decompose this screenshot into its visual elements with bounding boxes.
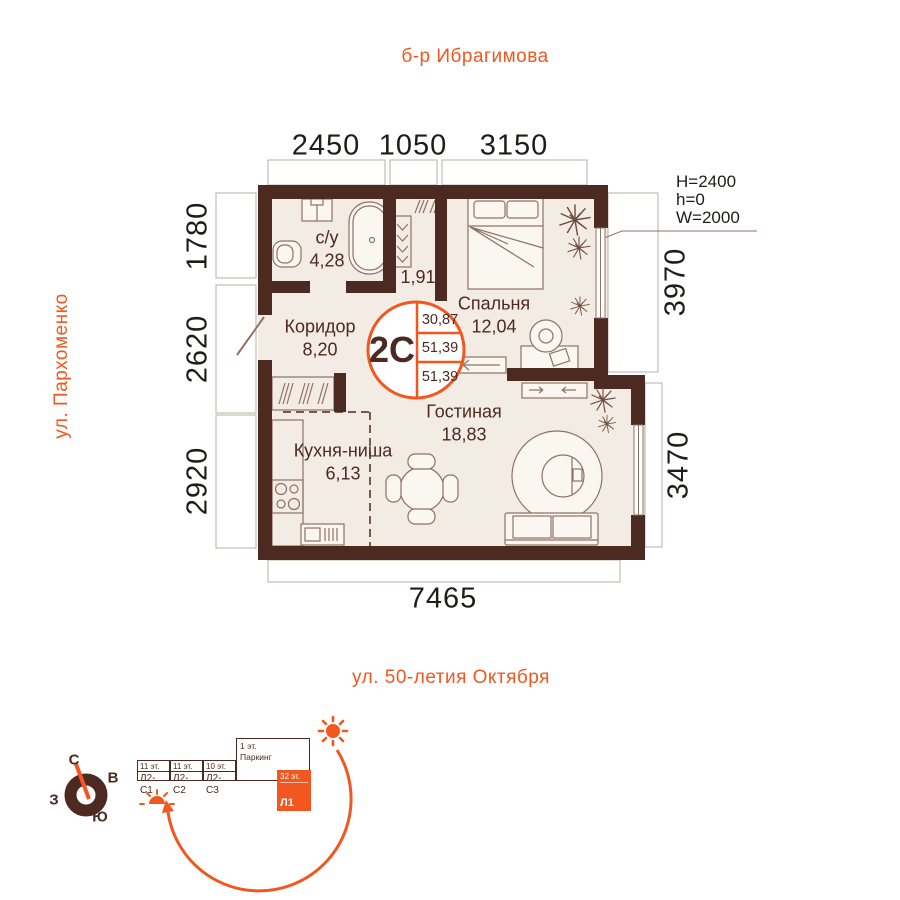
room-name-bathroom: с/у bbox=[309, 227, 344, 250]
room-label-bathroom: с/у 4,28 bbox=[309, 227, 344, 272]
room-area-living: 18,83 bbox=[426, 423, 502, 446]
site-block-l2-c2-floors: 11 эт. bbox=[171, 761, 202, 772]
site-block-l2-c2-name: Л2-С2 bbox=[171, 772, 202, 797]
site-block-l2-c1-name: Л2-С1 bbox=[138, 772, 169, 797]
site-block-l2-c1: 11 эт. Л2-С1 bbox=[137, 760, 170, 781]
dim-bottom: 7465 bbox=[409, 583, 478, 616]
window-spec-w: W=2000 bbox=[676, 209, 740, 227]
floorplan-drawing bbox=[0, 0, 900, 900]
room-label-hall: Коридор 8,20 bbox=[284, 316, 355, 361]
site-block-l2-c1-floors: 11 эт. bbox=[138, 761, 169, 772]
site-block-parking-floors: 1 эт. bbox=[240, 741, 306, 752]
unit-area-2: 51,39 bbox=[422, 340, 458, 356]
window-spec-h: H=2400 bbox=[676, 173, 740, 191]
dim-top-1: 2450 bbox=[292, 130, 361, 163]
room-name-kitchen: Кухня-ниша bbox=[294, 440, 393, 463]
window-spec-h0: h=0 bbox=[676, 191, 740, 209]
dining-table bbox=[400, 467, 444, 511]
compass-south: Ю bbox=[92, 809, 107, 826]
desk-chair bbox=[530, 320, 562, 352]
dim-top-2: 1050 bbox=[379, 130, 448, 163]
window-spec: H=2400 h=0 W=2000 bbox=[676, 173, 740, 227]
room-area-wardrobe: 1,91 bbox=[400, 266, 435, 289]
sun-icon bbox=[319, 717, 347, 745]
unit-area-3: 51,39 bbox=[422, 369, 458, 385]
room-label-living: Гостиная 18,83 bbox=[426, 401, 502, 446]
room-label-bedroom: Спальня 12,04 bbox=[458, 293, 530, 338]
street-label-top: б-р Ибрагимова bbox=[401, 46, 548, 68]
street-label-bottom: ул. 50-летия Октября bbox=[352, 667, 550, 689]
site-block-l1-name: Л1 bbox=[280, 797, 308, 809]
compass-east: В bbox=[108, 770, 119, 787]
room-name-bedroom: Спальня bbox=[458, 293, 530, 316]
compass bbox=[71, 764, 102, 811]
street-label-left: ул. Пархоменко bbox=[51, 293, 73, 438]
window-spec-leader bbox=[604, 231, 757, 238]
site-block-l1-floors: 32 эт. bbox=[280, 772, 308, 783]
unit-area-1: 30,87 bbox=[422, 312, 458, 328]
dim-left-2: 2620 bbox=[182, 315, 215, 384]
compass-west: З bbox=[49, 792, 58, 809]
room-area-kitchen: 6,13 bbox=[294, 462, 393, 485]
dim-left-1: 1780 bbox=[182, 202, 215, 271]
site-block-parking-name: Паркинг bbox=[240, 752, 306, 763]
floorplan-page: б-р Ибрагимова ул. Пархоменко ул. 50-лет… bbox=[0, 0, 900, 900]
compass-north: С bbox=[69, 752, 80, 769]
site-block-l2-c3-floors: 10 эт. bbox=[204, 761, 235, 772]
site-block-l2-c3-name: Л2-С3 bbox=[204, 772, 235, 797]
room-label-wardrobe: 1,91 bbox=[400, 266, 435, 289]
dim-left-3: 2920 bbox=[182, 447, 215, 516]
site-block-l2-c2: 11 эт. Л2-С2 bbox=[170, 760, 203, 781]
dim-right-2: 3470 bbox=[663, 431, 696, 500]
site-block-l1-tower: 32 эт. Л1 bbox=[277, 770, 311, 811]
room-area-bedroom: 12,04 bbox=[458, 315, 530, 338]
room-area-bathroom: 4,28 bbox=[309, 249, 344, 272]
dim-right-1: 3970 bbox=[660, 248, 693, 317]
room-name-living: Гостиная bbox=[426, 401, 502, 424]
site-block-l2-c3: 10 эт. Л2-С3 bbox=[203, 760, 236, 781]
dim-top-3: 3150 bbox=[480, 130, 549, 163]
room-label-kitchen: Кухня-ниша 6,13 bbox=[294, 440, 393, 485]
room-name-hall: Коридор bbox=[284, 316, 355, 339]
unit-type-label: 2С bbox=[369, 329, 415, 371]
room-area-hall: 8,20 bbox=[284, 338, 355, 361]
